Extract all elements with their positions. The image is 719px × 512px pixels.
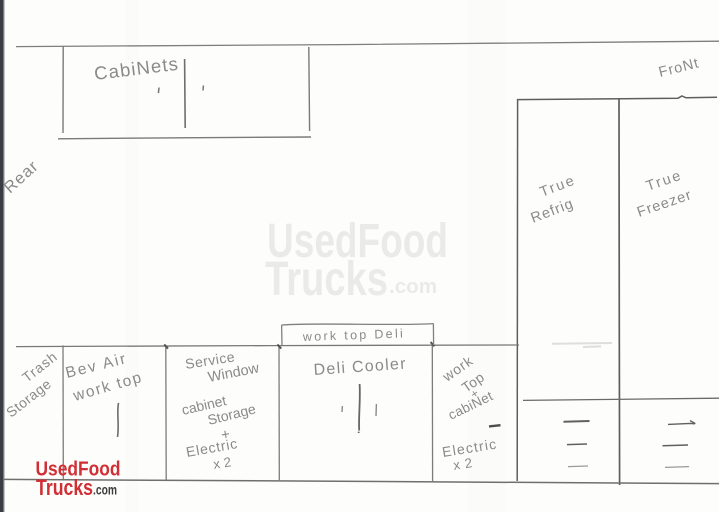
svg-text:Trucks: Trucks bbox=[265, 253, 388, 306]
svg-text:.com: .com bbox=[93, 482, 117, 498]
svg-text:Trucks: Trucks bbox=[36, 475, 93, 500]
svg-text:x 2: x 2 bbox=[452, 455, 474, 473]
svg-text:.com: .com bbox=[389, 276, 437, 298]
svg-text:x 2: x 2 bbox=[212, 454, 232, 472]
